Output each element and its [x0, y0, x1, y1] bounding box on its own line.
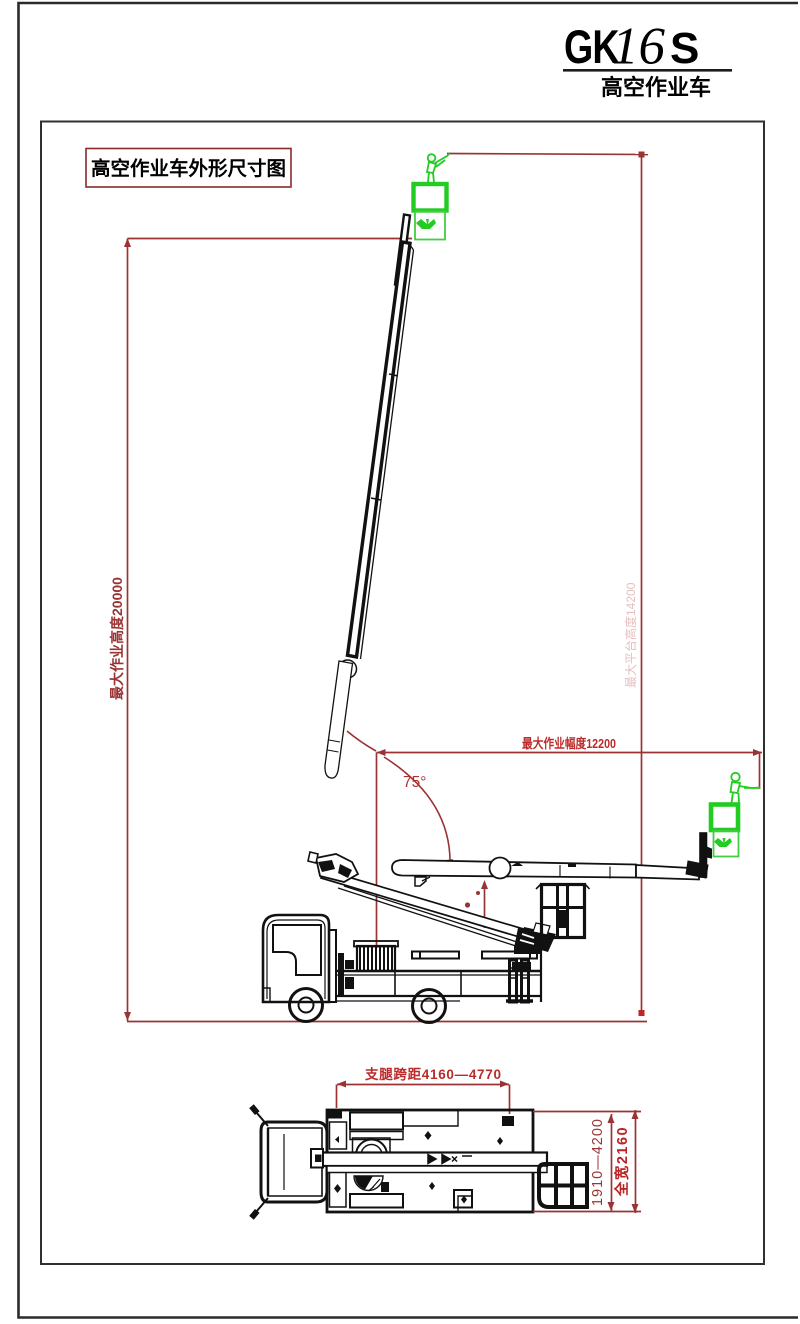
svg-text:全宽2160: 全宽2160 — [613, 1126, 631, 1197]
svg-text:75°: 75° — [403, 774, 426, 791]
svg-text:S: S — [670, 24, 699, 73]
svg-text:高空作业车外形尺寸图: 高空作业车外形尺寸图 — [91, 157, 286, 180]
svg-text:最大作业高度20000: 最大作业高度20000 — [109, 577, 125, 700]
svg-text:支腿跨距4160—4770: 支腿跨距4160—4770 — [364, 1066, 501, 1082]
svg-text:16: 16 — [612, 18, 666, 76]
svg-text:最大平台高度14200: 最大平台高度14200 — [623, 582, 638, 688]
svg-text:最大作业幅度12200: 最大作业幅度12200 — [522, 736, 616, 751]
svg-text:高空作业车: 高空作业车 — [601, 75, 711, 100]
svg-text:1910—4200: 1910—4200 — [590, 1118, 606, 1206]
